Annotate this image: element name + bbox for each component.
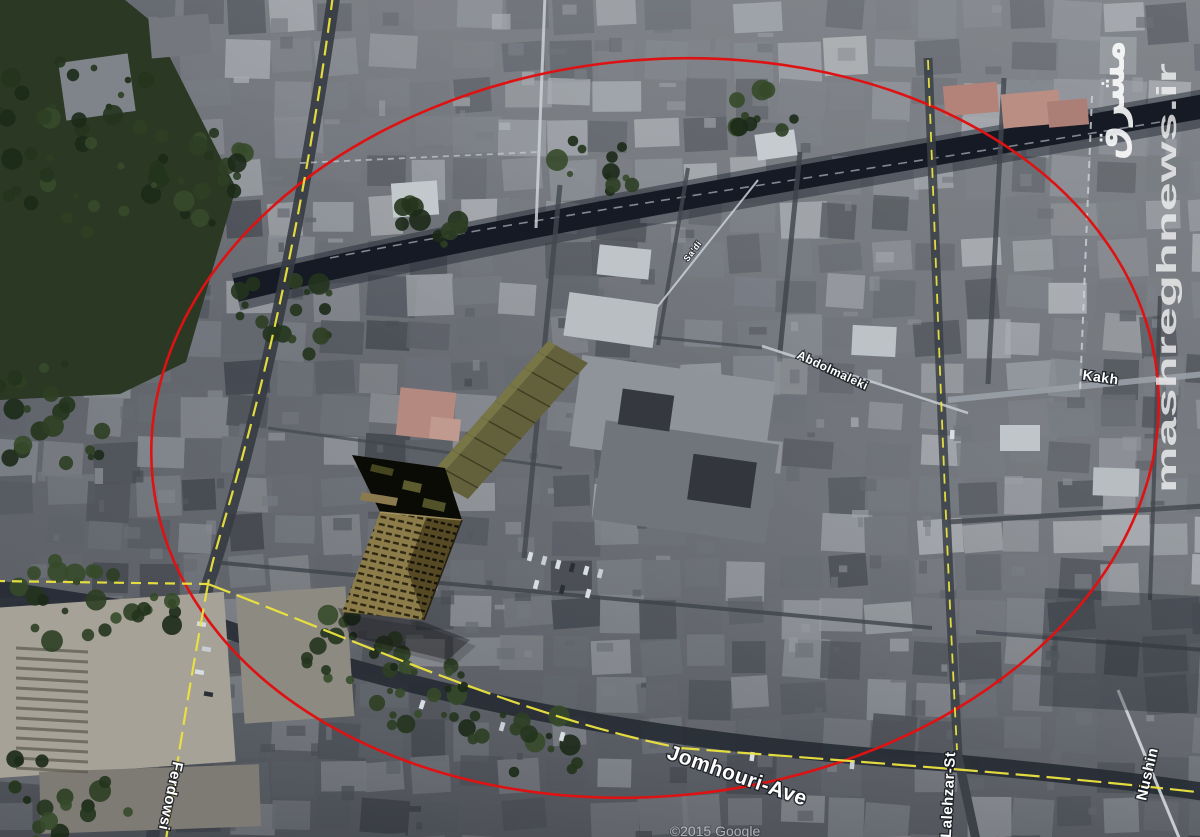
map-attribution: ©2015 Google [670,823,761,837]
satellite-map[interactable]: Jomhouri-Ave Ferdowsi Lalehzar-St Kakh N… [0,0,1200,837]
map-canvas: Jomhouri-Ave Ferdowsi Lalehzar-St Kakh N… [0,0,1200,837]
watermark-logo: مشرق [1089,40,1133,160]
watermark-site: mashreghnews.ir [1151,63,1182,493]
